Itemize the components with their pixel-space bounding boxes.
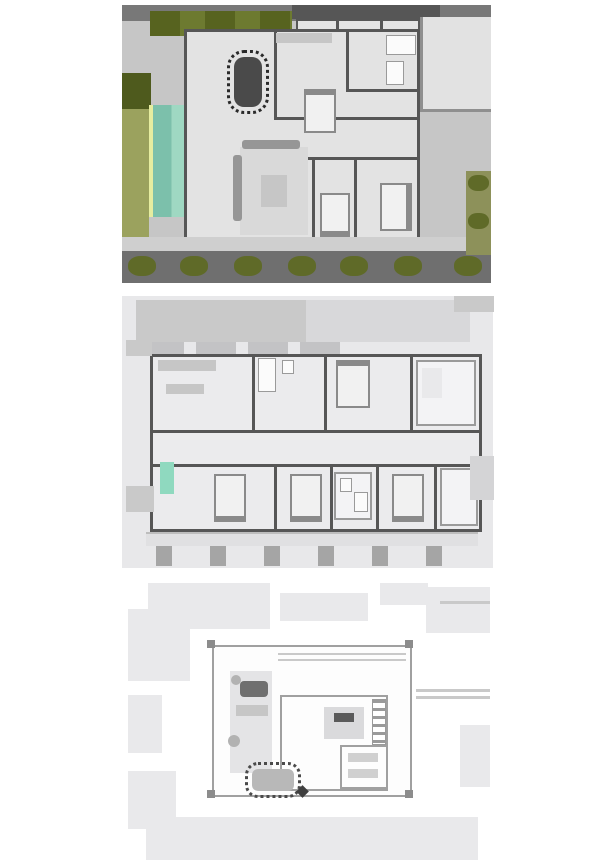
balcony-post-4 bbox=[318, 546, 334, 566]
terrace-post-se bbox=[405, 790, 413, 798]
roof-room bbox=[340, 745, 388, 789]
left-block-1 bbox=[126, 340, 152, 356]
roof-room-bench-1 bbox=[348, 753, 378, 762]
ground-floor-plan bbox=[122, 5, 491, 283]
wc-bottom bbox=[340, 478, 352, 492]
parapet-blob-5 bbox=[426, 587, 490, 633]
lounge-seat bbox=[240, 681, 268, 697]
bed-d bbox=[392, 474, 424, 522]
first-floor-plan bbox=[122, 296, 493, 568]
wall-v2 bbox=[346, 29, 349, 91]
plant-pot-1 bbox=[231, 675, 241, 685]
parapet-blob-2 bbox=[128, 609, 190, 681]
wc-top bbox=[282, 360, 294, 374]
wall-v3 bbox=[354, 157, 357, 247]
shrub-right-2 bbox=[468, 213, 489, 229]
stair-core-dark bbox=[334, 713, 354, 722]
pool-glimpse-below bbox=[160, 462, 174, 494]
p2-wall-v4 bbox=[274, 464, 277, 532]
terrace-post-ne bbox=[405, 640, 413, 648]
terrace-band-right bbox=[306, 300, 470, 342]
balcony-post-6 bbox=[426, 546, 442, 566]
balcony bbox=[146, 532, 478, 546]
shrub-6 bbox=[394, 256, 422, 276]
balcony-post-2 bbox=[210, 546, 226, 566]
p2-wall-v2 bbox=[324, 354, 327, 433]
kitchen-counter bbox=[276, 33, 332, 43]
parapet-blob-8 bbox=[146, 817, 478, 860]
shrub-5 bbox=[340, 256, 368, 276]
right-edge-block bbox=[470, 456, 494, 500]
terrace-band-left bbox=[136, 300, 306, 342]
parapet-blob-6 bbox=[128, 695, 162, 753]
wall-v4 bbox=[312, 157, 315, 247]
outdoor-dining-table bbox=[252, 769, 294, 791]
kitchenette-island bbox=[166, 384, 204, 394]
lawn-dark-square bbox=[122, 73, 151, 109]
stair-run bbox=[372, 699, 386, 745]
stair-core bbox=[324, 707, 364, 739]
lounge-bench bbox=[236, 705, 268, 716]
bathroom-fixture-1 bbox=[386, 35, 416, 55]
roof-plan bbox=[128, 583, 490, 860]
pergola-line-2 bbox=[278, 659, 406, 661]
bed-3 bbox=[304, 89, 336, 133]
p2-wall-v1 bbox=[252, 354, 255, 433]
bathtub-top bbox=[258, 358, 276, 392]
parapet-blob-3 bbox=[280, 593, 368, 621]
roof-line-3 bbox=[416, 696, 490, 699]
p2-wall-v5 bbox=[330, 464, 333, 532]
parapet-blob-4 bbox=[380, 583, 428, 605]
wall-h2 bbox=[346, 89, 420, 92]
bed-1 bbox=[320, 193, 350, 237]
roof-line-2 bbox=[416, 689, 490, 692]
bed-b bbox=[214, 474, 246, 522]
floor-plan-sheet bbox=[0, 0, 613, 867]
shower-bottom bbox=[354, 492, 368, 512]
p2-wall-v7 bbox=[434, 464, 437, 532]
coffee-table bbox=[261, 175, 287, 207]
shrub-2 bbox=[180, 256, 208, 276]
shrub-3 bbox=[234, 256, 262, 276]
p2-wall-v3 bbox=[410, 354, 413, 433]
shrub-right-1 bbox=[468, 175, 489, 191]
sofa-left bbox=[233, 155, 242, 221]
block-top-right bbox=[454, 296, 494, 312]
balcony-post-5 bbox=[372, 546, 388, 566]
shrub-7 bbox=[454, 256, 482, 276]
left-block-2 bbox=[126, 486, 154, 512]
balcony-post-3 bbox=[264, 546, 280, 566]
shrub-4 bbox=[288, 256, 316, 276]
p2-wall-v6 bbox=[376, 464, 379, 532]
dining-table bbox=[234, 57, 262, 107]
top-right-boundary bbox=[292, 5, 440, 19]
driveway-court bbox=[420, 17, 491, 112]
p2-wall-h1 bbox=[150, 430, 482, 433]
terrace-post-sw bbox=[207, 790, 215, 798]
bed-2 bbox=[380, 183, 412, 231]
swimming-pool bbox=[153, 105, 184, 217]
bed-a bbox=[336, 360, 370, 408]
kitchenette-counter bbox=[158, 360, 216, 371]
balcony-post-1 bbox=[156, 546, 172, 566]
bathroom-fixture-2 bbox=[386, 61, 404, 85]
bed-c bbox=[290, 474, 322, 522]
pergola-line-1 bbox=[278, 653, 406, 655]
roof-room-bench-2 bbox=[348, 769, 378, 778]
shrub-1 bbox=[128, 256, 156, 276]
parapet-blob-9 bbox=[460, 725, 490, 787]
p2-wall-h2 bbox=[150, 464, 482, 467]
room-top-right-inset bbox=[422, 368, 442, 398]
roof-line-1 bbox=[440, 601, 490, 604]
wall-h1 bbox=[274, 117, 420, 120]
terrace-post-nw bbox=[207, 640, 215, 648]
plant-pot-2 bbox=[228, 735, 240, 747]
sofa-top bbox=[242, 140, 300, 149]
